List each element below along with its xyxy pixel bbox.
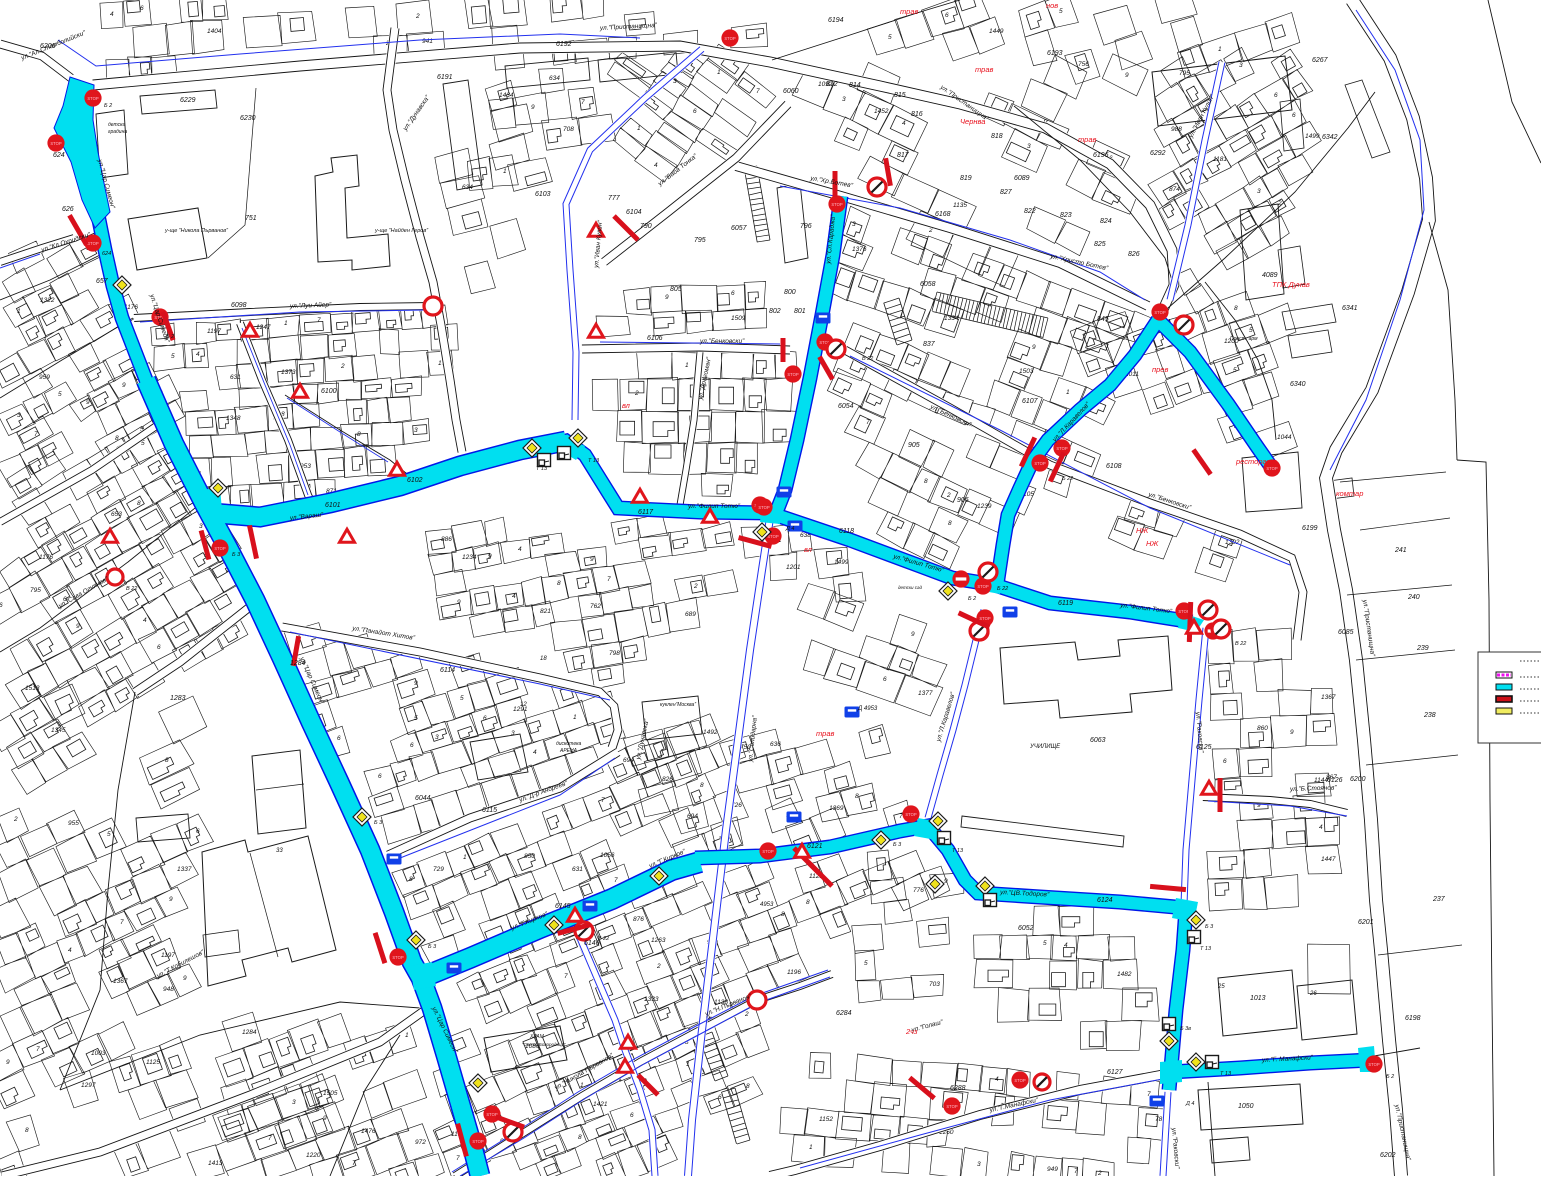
svg-text:5: 5 [171,353,175,360]
svg-text:1201: 1201 [786,564,801,571]
svg-text:1337: 1337 [177,866,192,873]
svg-text:Т 13: Т 13 [1200,946,1212,952]
svg-text:1413: 1413 [208,1160,223,1167]
svg-text:9: 9 [414,680,418,687]
svg-text:комтар: комтар [1336,489,1363,498]
svg-text:6: 6 [140,5,144,12]
svg-text:Б 22: Б 22 [598,936,609,942]
svg-text:1492: 1492 [703,729,718,736]
svg-text:6: 6 [1292,112,1296,119]
svg-text:детски сад: детски сад [898,585,923,590]
svg-text:6192: 6192 [556,41,572,48]
svg-text:819: 819 [960,175,972,182]
svg-text:1348: 1348 [226,415,241,422]
svg-text:1: 1 [284,320,288,327]
svg-text:1003: 1003 [91,1050,106,1057]
svg-text:972: 972 [415,1139,426,1146]
svg-text:STOP: STOP [1056,446,1068,451]
svg-text:7: 7 [756,88,760,95]
svg-text:1: 1 [809,1144,813,1151]
svg-text:6267: 6267 [1312,57,1329,64]
svg-text:948: 948 [163,986,174,993]
svg-text:6107: 6107 [1022,398,1039,405]
svg-text:7: 7 [34,431,38,438]
svg-text:6196: 6196 [1093,152,1109,159]
svg-text:6100: 6100 [321,388,337,395]
svg-text:8: 8 [409,876,413,883]
svg-text:653: 653 [111,511,122,518]
svg-text:4: 4 [1319,824,1323,831]
svg-text:5: 5 [888,34,892,41]
svg-text:12: 12 [520,702,527,708]
svg-text:9: 9 [183,975,187,982]
svg-text:955: 955 [68,820,79,827]
svg-text:6194: 6194 [828,17,844,24]
svg-text:Б 2: Б 2 [968,596,976,602]
svg-text:636: 636 [770,741,781,748]
svg-text:5: 5 [1249,327,1253,334]
svg-text:6191: 6191 [437,74,453,81]
svg-text:ул.”Бенковски”: ул.”Бенковски” [699,338,745,345]
svg-text:Чернва: Чернва [960,117,985,126]
svg-text:3: 3 [1257,188,1261,195]
svg-text:ТПК Дунав: ТПК Дунав [1272,280,1310,289]
svg-text:6108: 6108 [1106,463,1122,470]
svg-text:Б 2: Б 2 [1386,1074,1394,1080]
svg-text:дискотека: дискотека [556,741,581,747]
svg-text:756: 756 [1078,61,1089,68]
svg-text:6106: 6106 [647,335,663,342]
svg-text:6: 6 [157,644,161,651]
svg-text:1013: 1013 [1250,995,1266,1002]
svg-text:6: 6 [945,12,949,19]
svg-text:823: 823 [1060,212,1072,219]
svg-text:1513: 1513 [25,685,40,692]
svg-text:трав: трав [900,7,919,16]
svg-text:4: 4 [110,11,114,18]
svg-text:817: 817 [897,152,910,159]
svg-text:6052: 6052 [1018,925,1034,932]
svg-text:802: 802 [769,308,781,315]
svg-text:906: 906 [957,497,969,504]
svg-text:8: 8 [924,478,928,485]
svg-text:7: 7 [601,797,605,804]
svg-text:1373: 1373 [281,369,296,376]
svg-text:Т 13: Т 13 [1220,1071,1232,1077]
svg-text:874: 874 [1169,186,1180,193]
svg-text:816: 816 [911,111,923,118]
svg-text:STOP: STOP [1014,1078,1026,1083]
svg-text:860: 860 [1257,725,1268,732]
svg-text:6145: 6145 [555,903,571,910]
svg-text:3: 3 [292,1099,296,1106]
svg-text:845: 845 [1097,316,1109,323]
svg-text:6: 6 [693,108,697,115]
svg-text:6089: 6089 [1014,175,1030,182]
svg-text:4: 4 [902,120,906,127]
svg-text:Т 13: Т 13 [588,458,600,464]
svg-text:708: 708 [563,126,574,133]
svg-text:6104: 6104 [626,209,642,216]
svg-text:4: 4 [654,162,658,169]
svg-text:624: 624 [53,152,65,159]
svg-text:6115: 6115 [482,807,497,814]
svg-text:3: 3 [977,1161,981,1168]
svg-text:1181: 1181 [1213,156,1227,163]
svg-text:6199: 6199 [1302,525,1318,532]
svg-text:Б 3: Б 3 [893,842,902,848]
svg-text:9: 9 [488,553,492,560]
svg-text:8: 8 [557,580,561,587]
svg-text:1: 1 [463,854,467,861]
svg-text:703: 703 [929,981,940,988]
svg-text:нов: нов [1046,1,1058,10]
svg-text:трав: трав [1078,135,1097,144]
svg-text:Т 13: Т 13 [536,466,548,472]
svg-text:6121: 6121 [807,843,823,850]
svg-text:6101: 6101 [325,502,341,509]
svg-text:238: 238 [1423,712,1436,719]
svg-text:В 22: В 22 [126,586,137,592]
svg-text:6: 6 [410,742,414,749]
svg-text:6342: 6342 [1322,134,1338,141]
svg-text:9: 9 [169,896,173,903]
svg-text:6193: 6193 [1047,50,1063,57]
svg-text:у-ще ”Никола Първанов”: у-ще ”Никола Първанов” [164,228,229,234]
svg-text:9: 9 [1032,344,1036,351]
svg-text:4: 4 [196,351,200,358]
svg-text:3: 3 [414,427,418,434]
svg-text:7: 7 [456,1155,460,1162]
svg-text:1: 1 [637,125,641,132]
svg-text:1135: 1135 [953,202,967,209]
svg-text:4: 4 [533,749,537,756]
svg-text:НЖ: НЖ [1136,526,1149,535]
svg-text:6288: 6288 [950,1085,966,1092]
svg-text:3: 3 [199,523,203,530]
svg-text:8: 8 [746,1083,750,1090]
svg-text:5: 5 [1043,940,1047,947]
svg-text:1449: 1449 [989,28,1004,35]
svg-text:7: 7 [614,877,618,884]
svg-text:8: 8 [25,1127,29,1134]
svg-text:1476: 1476 [361,1128,376,1135]
svg-text:6103: 6103 [535,191,551,198]
svg-text:ХРАМ: ХРАМ [529,1034,545,1040]
svg-text:7: 7 [268,1135,272,1142]
svg-text:6124: 6124 [1097,897,1113,904]
svg-text:1392: 1392 [1225,539,1240,546]
svg-text:8: 8 [948,520,952,527]
svg-text:STOP: STOP [979,616,991,621]
svg-text:1197: 1197 [161,952,175,959]
svg-text:В 22: В 22 [1235,641,1246,647]
svg-text:825: 825 [1094,241,1106,248]
svg-text:818: 818 [991,133,1003,140]
svg-text:694: 694 [687,813,698,820]
svg-text:1239: 1239 [977,503,992,510]
svg-text:2: 2 [744,1011,749,1018]
svg-text:1: 1 [503,168,507,175]
svg-text:6114: 6114 [440,667,455,674]
svg-text:634: 634 [549,75,560,82]
svg-text:2: 2 [656,963,661,970]
svg-text:1: 1 [1218,46,1222,53]
svg-text:2: 2 [693,583,698,590]
svg-text:8: 8 [855,793,859,800]
svg-text:795: 795 [30,587,41,594]
svg-text:6118: 6118 [839,528,854,535]
svg-text:1509: 1509 [731,315,746,322]
svg-text:3: 3 [17,412,21,419]
svg-text:куклен”Москва”: куклен”Москва” [660,702,696,708]
svg-text:1333: 1333 [644,996,659,1003]
svg-text:STOP: STOP [1368,1062,1380,1067]
svg-text:1499: 1499 [1305,133,1320,140]
svg-text:2чз: 2чз [905,1027,918,1036]
svg-text:2: 2 [13,816,18,823]
svg-text:9: 9 [86,399,90,406]
svg-text:STOP: STOP [214,546,226,551]
svg-text:ул.”Луи Айер”: ул.”Луи Айер” [289,301,332,311]
svg-text:Д 4: Д 4 [1185,1101,1194,1107]
svg-text:826: 826 [662,776,673,783]
svg-text:8: 8 [137,500,141,507]
svg-text:1263: 1263 [651,937,666,944]
svg-text:1196: 1196 [787,969,801,976]
svg-text:3: 3 [511,730,515,737]
svg-text:6: 6 [337,735,341,742]
svg-text:2: 2 [634,390,639,397]
svg-text:3: 3 [435,734,439,741]
svg-text:850: 850 [524,853,535,860]
svg-text:STOP: STOP [87,241,99,246]
svg-text:9: 9 [1290,729,1294,736]
svg-text:ресторант: ресторант [1235,457,1277,466]
svg-text:949: 949 [1047,1166,1058,1173]
svg-text:6044: 6044 [415,795,431,802]
svg-text:6: 6 [718,1094,722,1101]
svg-text:Б 22: Б 22 [1062,476,1073,482]
svg-text:240: 240 [1407,594,1420,601]
svg-text:867: 867 [1326,774,1337,781]
svg-text:6: 6 [731,290,735,297]
svg-text:прев: прев [1152,365,1168,374]
svg-text:905: 905 [908,442,920,449]
svg-text:STOP: STOP [1034,461,1046,466]
svg-text:5: 5 [414,715,418,722]
svg-text:5: 5 [460,695,464,702]
svg-text:6230: 6230 [240,115,256,122]
svg-text:6206: 6206 [40,43,56,50]
svg-text:8: 8 [700,782,704,789]
svg-text:6: 6 [0,602,3,609]
svg-text:4: 4 [518,546,522,553]
svg-text:STOP: STOP [905,812,917,817]
svg-text:6: 6 [378,773,382,780]
svg-text:634: 634 [462,184,473,191]
svg-text:2: 2 [1097,1170,1102,1176]
svg-text:1367: 1367 [113,978,128,985]
svg-text:STOP: STOP [87,96,99,101]
svg-text:STOP: STOP [977,584,989,589]
svg-text:5: 5 [1059,8,1063,15]
svg-text:1482: 1482 [1117,971,1132,978]
svg-text:3: 3 [852,221,856,228]
svg-text:6127: 6127 [1107,1069,1124,1076]
svg-text:801: 801 [794,308,806,315]
svg-text:5: 5 [107,831,111,838]
svg-text:6058: 6058 [920,281,936,288]
svg-text:3: 3 [673,78,677,85]
svg-text:STOP: STOP [50,141,62,146]
svg-text:9: 9 [911,631,915,638]
svg-text:1176: 1176 [39,554,53,561]
svg-text:7: 7 [866,419,870,426]
svg-text:237: 237 [1432,896,1446,903]
svg-text:STOP: STOP [1266,466,1278,471]
svg-text:”Свето Богородица”: ”Свето Богородица” [522,1042,566,1047]
svg-text:6: 6 [630,1112,634,1119]
svg-text:694: 694 [623,757,634,764]
svg-text:4953: 4953 [760,902,774,908]
svg-text:7: 7 [317,317,321,324]
svg-text:1284: 1284 [242,1029,257,1036]
svg-text:STOP: STOP [831,202,843,207]
svg-text:1056: 1056 [600,852,615,859]
svg-text:1376: 1376 [852,246,867,253]
svg-text:795: 795 [694,237,706,244]
svg-text:822: 822 [1024,208,1036,215]
svg-text:трав: трав [975,65,994,74]
svg-text:821: 821 [540,608,551,615]
svg-text:8: 8 [1234,305,1238,312]
svg-text:Б 22: Б 22 [997,586,1008,592]
svg-text:6292: 6292 [1150,150,1166,157]
svg-text:STOP: STOP [724,36,736,41]
svg-text:798: 798 [609,650,620,657]
svg-text:1: 1 [405,1032,409,1039]
svg-text:6119: 6119 [1058,600,1073,607]
svg-text:6: 6 [196,828,200,835]
svg-text:1283: 1283 [170,695,186,702]
svg-text:9: 9 [6,1059,10,1066]
svg-text:631: 631 [230,374,241,381]
svg-text:814: 814 [849,82,861,89]
svg-text:6125: 6125 [1196,744,1212,751]
svg-text:у-ще ”Найден Геров”: у-ще ”Найден Геров” [374,227,429,234]
svg-text:4: 4 [1064,942,1068,949]
svg-text:1044: 1044 [1277,434,1292,441]
svg-text:689: 689 [685,611,696,618]
svg-text:3: 3 [842,96,846,103]
svg-text:5: 5 [864,960,868,967]
svg-text:Б 2: Б 2 [166,334,174,340]
svg-text:3: 3 [1239,62,1243,69]
svg-text:1434: 1434 [499,92,514,99]
svg-text:631: 631 [572,866,583,873]
svg-text:7: 7 [581,99,585,106]
svg-text:8: 8 [165,757,169,764]
svg-text:1152: 1152 [819,1116,833,1123]
svg-text:4: 4 [995,1076,999,1083]
svg-text:826: 826 [1128,251,1140,258]
svg-text:2: 2 [340,363,345,370]
svg-text:STOP: STOP [392,955,404,960]
svg-text:5: 5 [1233,367,1237,374]
svg-text:837: 837 [923,341,936,348]
svg-text:6060: 6060 [783,88,799,95]
svg-text:градина: градина [108,129,127,135]
svg-text:2: 2 [415,13,420,20]
svg-text:1: 1 [686,1061,690,1068]
svg-text:1197: 1197 [207,328,221,335]
svg-text:трав: трав [816,729,835,738]
svg-text:6057: 6057 [731,225,748,232]
svg-text:9: 9 [323,1115,327,1122]
svg-text:1404: 1404 [207,28,222,35]
svg-text:3: 3 [1027,143,1031,150]
svg-text:18: 18 [540,656,547,662]
svg-text:Т 13: Т 13 [952,848,964,854]
svg-text:6340: 6340 [1290,381,1306,388]
svg-text:751: 751 [245,215,257,222]
svg-text:6063: 6063 [1090,737,1106,744]
svg-text:Б 3: Б 3 [374,820,383,826]
svg-text:239: 239 [1416,645,1429,652]
svg-text:6098: 6098 [231,302,247,309]
svg-text:STOP: STOP [787,372,799,377]
svg-text:7: 7 [1074,1168,1078,1175]
svg-text:988: 988 [1171,126,1182,133]
svg-text:8: 8 [578,1134,582,1141]
svg-text:Д 4953: Д 4953 [857,706,878,712]
svg-text:4: 4 [68,947,72,954]
svg-text:Прист. арм: Прист. арм [1230,336,1258,342]
svg-text:Б 3: Б 3 [232,552,241,558]
svg-text:Б 3: Б 3 [1205,924,1214,930]
svg-text:6: 6 [1274,92,1278,99]
svg-text:вл: вл [622,401,631,410]
svg-text:1345: 1345 [51,727,66,734]
svg-text:657: 657 [96,278,109,285]
svg-text:1: 1 [717,69,721,76]
svg-text:777: 777 [608,195,621,202]
svg-text:729: 729 [433,866,444,873]
svg-text:В 22: В 22 [862,356,873,362]
svg-text:1377: 1377 [918,690,933,697]
svg-text:624: 624 [102,251,111,257]
svg-text:33: 33 [276,848,283,854]
svg-text:6054: 6054 [838,403,854,410]
svg-text:876: 876 [633,916,644,923]
svg-text:6: 6 [883,676,887,683]
svg-text:9: 9 [531,104,535,111]
svg-text:1: 1 [685,362,689,369]
svg-text:7: 7 [899,813,903,820]
svg-text:детска: детска [108,122,125,128]
svg-text:812: 812 [826,81,838,88]
svg-text:9: 9 [1125,72,1129,79]
svg-text:1367: 1367 [1321,694,1336,701]
svg-text:9: 9 [665,294,669,301]
svg-text:26: 26 [1309,991,1317,997]
svg-text:6202: 6202 [1380,1152,1396,1159]
svg-text:1220: 1220 [306,1152,321,1159]
svg-text:886: 886 [441,536,452,543]
svg-text:1: 1 [17,308,21,315]
svg-text:9: 9 [457,599,461,606]
